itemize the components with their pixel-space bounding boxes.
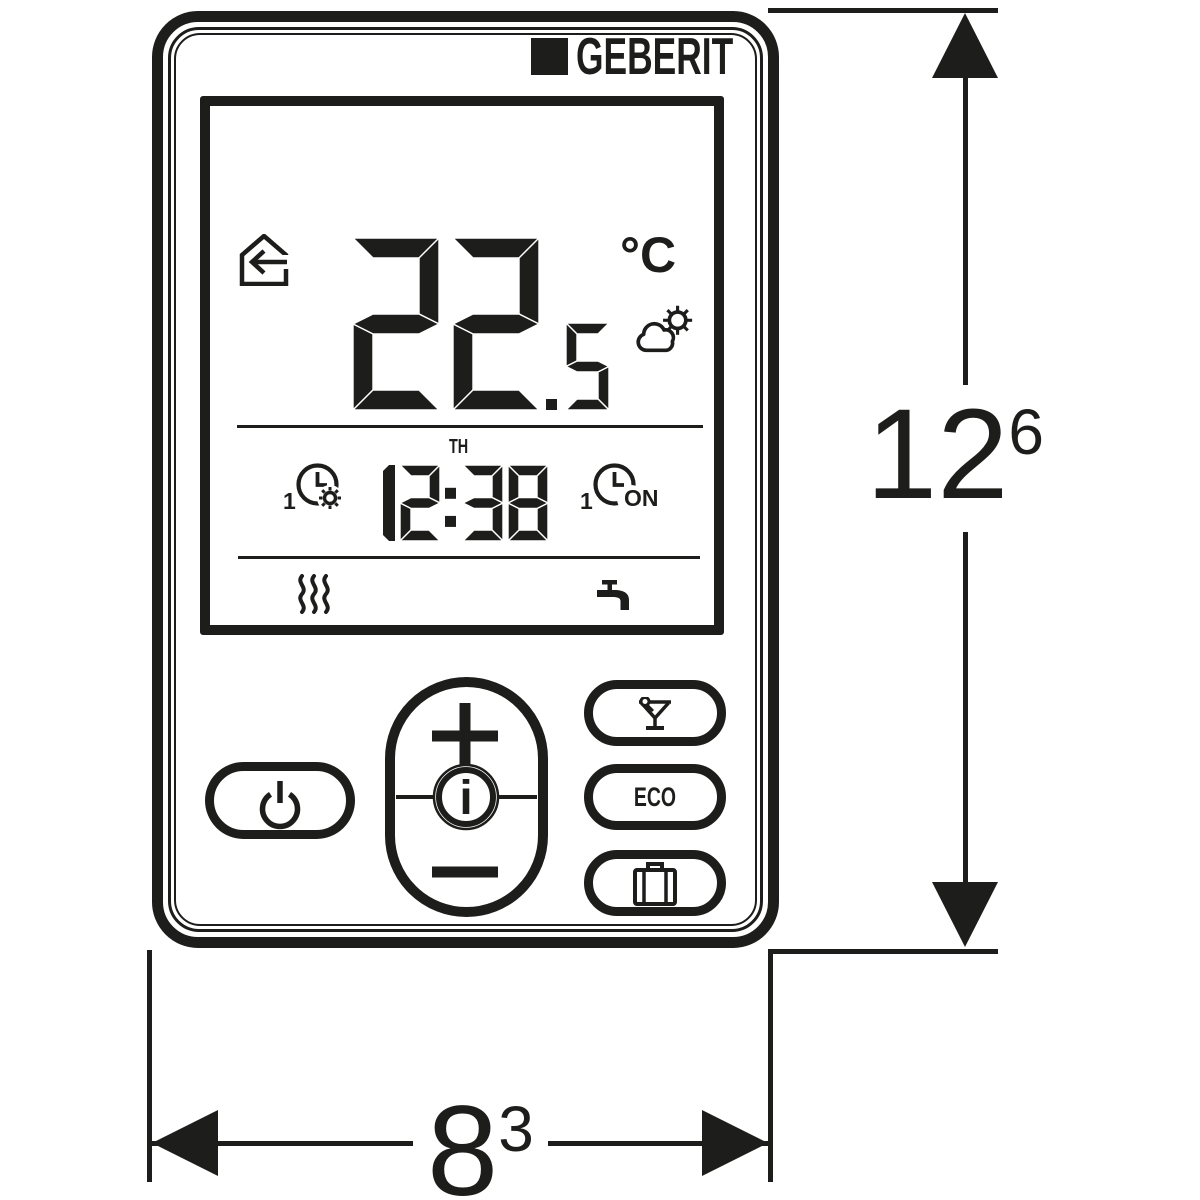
geberit-logo-text: GEBERIT [576, 31, 733, 83]
weekday-label: TH [449, 437, 468, 457]
minus-icon[interactable] [432, 865, 498, 879]
plus-icon[interactable] [432, 703, 498, 769]
time-7seg [383, 465, 548, 541]
height-arrow-down [932, 882, 998, 947]
width-arrow-left [152, 1110, 218, 1176]
width-dimension-label: 83 [413, 1088, 548, 1200]
heating-timer-index: 1 [283, 488, 296, 511]
eco-label: ECO [610, 773, 699, 821]
width-sup: 3 [498, 1097, 534, 1161]
temperature-7seg [353, 238, 539, 410]
width-arrow-right [702, 1110, 768, 1176]
on-timer-state: ON [624, 485, 659, 511]
cocktail-icon [637, 697, 673, 731]
clock-gear-icon: 1 [283, 459, 343, 511]
temperature-decimal-7seg [546, 323, 609, 410]
info-label: i [459, 772, 472, 825]
height-arrow-up [932, 13, 998, 78]
width-value: 8 [427, 1088, 498, 1200]
tap-icon [595, 580, 631, 610]
eco-button[interactable]: ECO [584, 764, 726, 830]
on-timer-index: 1 [580, 488, 593, 511]
celsius-unit: °C [620, 230, 676, 280]
heating-waves-icon [297, 574, 331, 614]
info-button[interactable]: i [432, 763, 500, 831]
power-icon [258, 776, 302, 832]
display-separator-top [237, 425, 703, 428]
sun-behind-cloud-icon [634, 304, 696, 354]
height-value: 12 [866, 391, 1008, 519]
width-extension-line-right [768, 950, 773, 1182]
dimension-drawing: GEBERIT °C 1 [0, 0, 1200, 1200]
height-dimension-label: 126 [866, 391, 1044, 519]
display-separator-bottom [238, 556, 700, 559]
suitcase-icon [633, 861, 677, 906]
height-sup: 6 [1008, 400, 1044, 464]
height-dim-line-lower [963, 532, 968, 882]
geberit-logo-mark [531, 38, 568, 75]
height-extension-line-bottom [768, 949, 998, 954]
height-dim-line-upper [963, 76, 968, 385]
house-arrow-icon [239, 234, 289, 286]
clock-on-icon: ON 1 [578, 459, 678, 511]
